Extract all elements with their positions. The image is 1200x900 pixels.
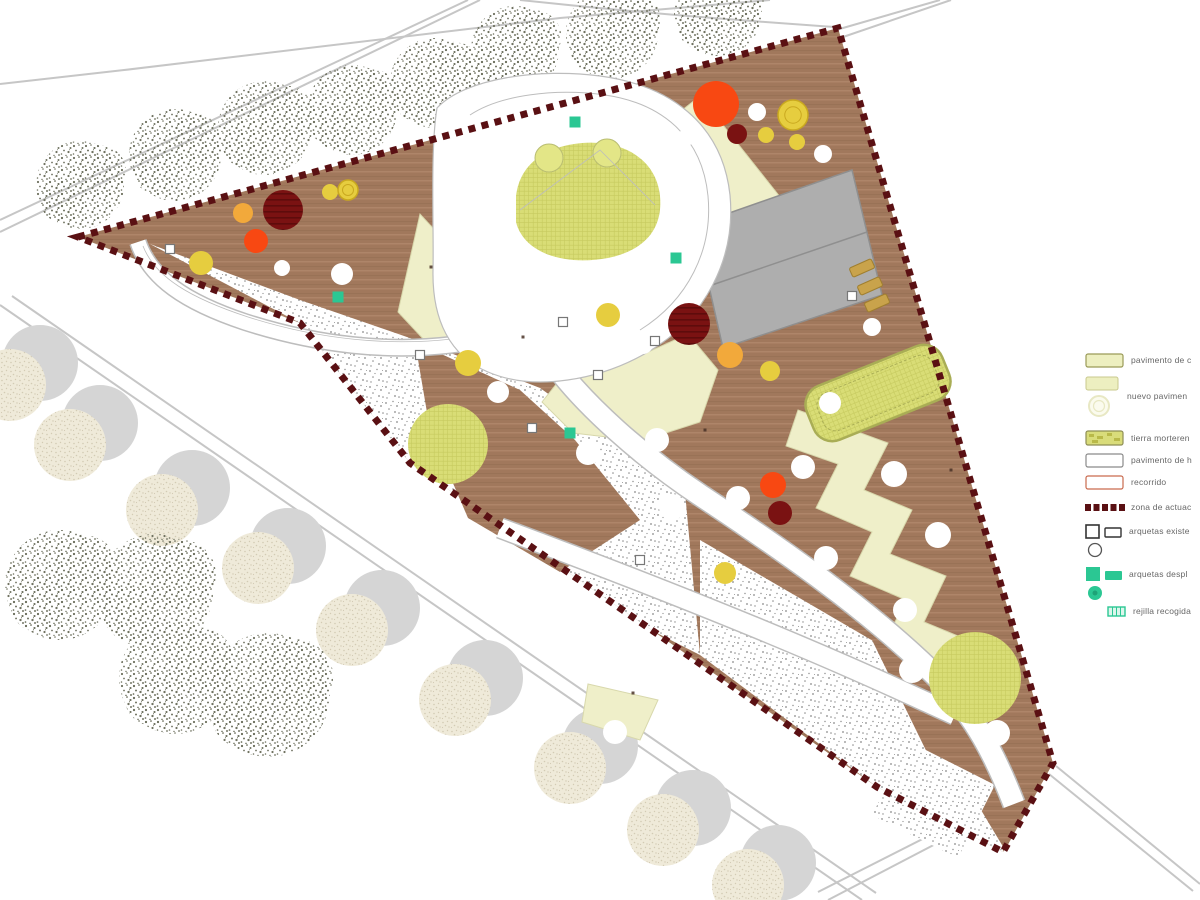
pale-rect-swatch-icon [1085, 353, 1125, 369]
road-line [836, 0, 940, 30]
stippled-tree [34, 409, 106, 481]
tree-circle-white [679, 127, 697, 145]
tree-circle-white [814, 145, 832, 163]
tree-circle-yellow [189, 251, 213, 275]
legend-item-pavimento-caucho: pavimento de c [1085, 353, 1200, 369]
sketchy-tree [40, 178, 84, 222]
sketchy-tree [678, 5, 722, 49]
tree-circle-white [925, 522, 951, 548]
sketchy-tree [11, 577, 66, 632]
white-rect-swatch-icon [1085, 453, 1125, 469]
black-outline-circle-icon [1085, 542, 1123, 559]
tree-circle-white [863, 318, 881, 336]
dashed-line-swatch-icon [1085, 503, 1125, 513]
legend-label: pavimento de c [1131, 356, 1191, 365]
tree-circle-yellow [322, 184, 338, 200]
tree-circle-white [899, 657, 925, 683]
tree-circle-white [331, 263, 353, 285]
tree-circle-yellow [455, 350, 481, 376]
existing-manhole-marker [559, 318, 568, 327]
green-filled-shapes-icon [1085, 566, 1123, 583]
tree-circle-yellow [758, 127, 774, 143]
tree-circle-white [726, 486, 750, 510]
green-grid-rect-icon [1107, 606, 1127, 618]
tree-circle-orange-red [693, 81, 739, 127]
tree-circle-white [659, 494, 685, 520]
tree-circle-white [893, 598, 917, 622]
relocated-manhole-marker [570, 117, 581, 128]
legend-label: pavimento de h [1131, 456, 1192, 465]
tree-circle-white [489, 301, 507, 319]
legend-item-recorrido: recorrido [1085, 475, 1200, 491]
legend-label: nuevo pavimen [1127, 392, 1187, 401]
pale-rect-swatch-icon [1085, 376, 1121, 392]
tree-circle-yellow [789, 134, 805, 150]
stippled-tree [534, 732, 606, 804]
small-dot-marker [522, 336, 525, 339]
sketchy-tree [571, 26, 617, 72]
legend: pavimento de c nuevo pavimen tierra mort… [1085, 353, 1200, 633]
relocated-manhole-marker [333, 292, 344, 303]
tree-circle-white [576, 441, 600, 465]
legend-item-arquetas-desplazadas: arquetas despl [1085, 566, 1200, 604]
legend-label: zona de actuac [1131, 503, 1191, 512]
sketchy-tree [134, 148, 180, 194]
tree-circle-orange [233, 203, 253, 223]
tree-circle-yellow [714, 562, 736, 584]
legend-label: arquetas despl [1129, 570, 1188, 579]
existing-manhole-marker [594, 371, 603, 380]
sketchy-tree [212, 686, 274, 748]
legend-label: rejilla recogida [1133, 607, 1191, 616]
existing-manhole-marker [651, 337, 660, 346]
tree-circle-white [881, 461, 907, 487]
tree-circle-lime [929, 632, 1021, 724]
small-dot-marker [704, 429, 707, 432]
tree-circle-orange-red [244, 229, 268, 253]
road-line [843, 0, 951, 37]
tree-circle-white [791, 455, 815, 479]
small-dot-marker [632, 692, 635, 695]
tree-circle-dark-red [768, 501, 792, 525]
existing-manhole-marker [528, 424, 537, 433]
legend-label: recorrido [1131, 478, 1166, 487]
legend-item-pavimento-hormigon: pavimento de h [1085, 453, 1200, 469]
relocated-manhole-marker [565, 428, 576, 439]
tree-circle-white [984, 720, 1010, 746]
site-plan-drawing [0, 0, 1200, 900]
sketchy-tree [223, 121, 270, 168]
tree-circle-white [603, 720, 627, 744]
legend-label: arquetas existe [1129, 527, 1190, 536]
existing-manhole-marker [166, 245, 175, 254]
tree-circle-dark-red [727, 124, 747, 144]
textured-rect-swatch-icon [1085, 430, 1125, 447]
black-outline-shapes-icon [1085, 524, 1123, 540]
red-outline-rect-swatch-icon [1085, 475, 1125, 491]
existing-manhole-marker [416, 351, 425, 360]
stippled-tree [222, 532, 294, 604]
existing-manhole-marker [848, 292, 857, 301]
relocated-manhole-marker [671, 253, 682, 264]
sketchy-tree [125, 670, 181, 726]
stippled-tree [419, 664, 491, 736]
tree-circle-dark-red-striped [668, 303, 710, 345]
tree-circle-yellow-ring [778, 100, 808, 130]
stippled-tree [316, 594, 388, 666]
tree-circle-orange [717, 342, 743, 368]
landscape-plan-page: { "legend": { "items": [ { "id": "pavime… [0, 0, 1200, 900]
legend-item-zona-actuacion: zona de actuac [1085, 503, 1200, 513]
legend-item-rejilla-recogida: rejilla recogida [1107, 606, 1200, 618]
tree-circle-yellow-ring [338, 180, 358, 200]
play-mound [593, 139, 621, 167]
legend-item-arquetas-existentes: arquetas existe [1085, 524, 1200, 562]
stippled-tree [627, 794, 699, 866]
play-mound [535, 144, 563, 172]
road-line [1049, 774, 1193, 891]
tree-circle-white [748, 103, 766, 121]
green-filled-circle-icon [1085, 585, 1123, 602]
tree-circle-orange-red [760, 472, 786, 498]
tree-circle-white [274, 260, 290, 276]
tree-circle-white [487, 381, 509, 403]
pale-circle-swatch-icon [1085, 394, 1121, 418]
tree-circle-white [819, 392, 841, 414]
tree-circle-white [645, 428, 669, 452]
existing-manhole-marker [636, 556, 645, 565]
tree-circle-white [627, 119, 647, 139]
tree-circle-yellow [596, 303, 620, 327]
legend-item-nuevo-pavimento: nuevo pavimen [1085, 375, 1200, 419]
small-dot-marker [950, 469, 953, 472]
tree-circle-dark-red-striped [263, 190, 303, 230]
legend-item-tierra-morterenca: tierra morteren [1085, 430, 1200, 447]
sketchy-tree [312, 103, 357, 148]
legend-label: tierra morteren [1131, 434, 1190, 443]
road-line [1056, 766, 1200, 884]
tree-circle-white [814, 546, 838, 570]
small-dot-marker [430, 266, 433, 269]
tree-circle-yellow [760, 361, 780, 381]
sketchy-tree [395, 76, 440, 121]
